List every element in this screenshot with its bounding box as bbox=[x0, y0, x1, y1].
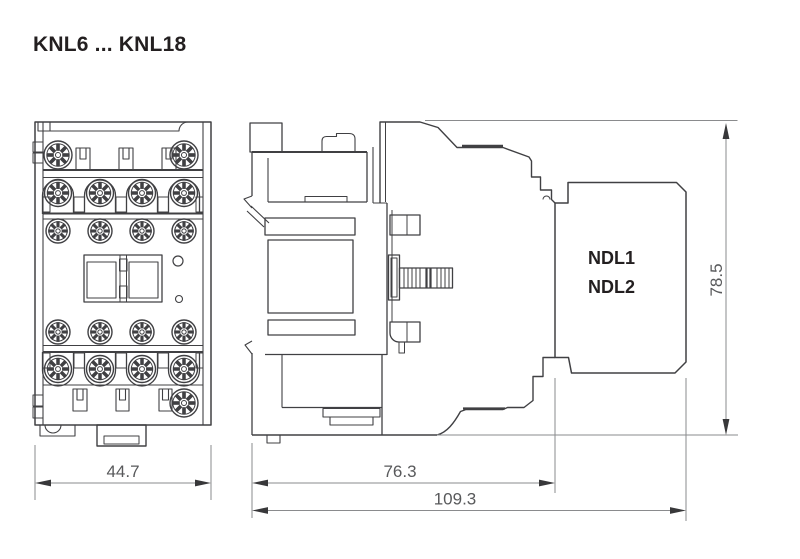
bottom-right-profile bbox=[437, 358, 555, 436]
dim-side-height: 78.5 bbox=[707, 263, 726, 296]
dimension-texts: 44.7 76.3 109.3 78.5 bbox=[106, 263, 726, 508]
screw-head bbox=[87, 356, 114, 383]
screw-head bbox=[45, 180, 72, 207]
top-separator-tabs bbox=[76, 148, 176, 170]
screw-head bbox=[44, 141, 72, 169]
screw-head bbox=[170, 389, 198, 417]
screw-terminals bbox=[44, 141, 198, 417]
screw-head bbox=[170, 141, 198, 169]
accessory-labels: NDL1 NDL2 bbox=[588, 248, 635, 297]
screw-head bbox=[45, 356, 72, 383]
dimension-arrows bbox=[35, 123, 729, 514]
label-ndl1: NDL1 bbox=[588, 248, 635, 268]
coil-terminal-lower bbox=[390, 322, 420, 353]
label-ndl2: NDL2 bbox=[588, 277, 635, 297]
din-rail-clip bbox=[40, 425, 146, 446]
dim-side-depth: 76.3 bbox=[383, 462, 416, 481]
front-view bbox=[33, 122, 211, 446]
coil-stack bbox=[265, 218, 355, 335]
screw-head bbox=[130, 219, 154, 243]
screw-head bbox=[87, 180, 114, 207]
upper-chamber bbox=[268, 134, 387, 204]
screw-head bbox=[88, 219, 112, 243]
screw-head bbox=[172, 320, 196, 344]
mounting-plate bbox=[244, 123, 367, 443]
indicator-hole-small bbox=[176, 296, 183, 303]
technical-drawing-page: KNL6 ... KNL18 bbox=[0, 0, 800, 559]
screw-head bbox=[171, 356, 198, 383]
screw-head bbox=[88, 320, 112, 344]
screw-head bbox=[129, 356, 156, 383]
coil-terminal-upper bbox=[390, 215, 420, 235]
bottom-separator-tabs bbox=[73, 389, 172, 411]
indicator-hole-large bbox=[173, 256, 183, 266]
terminal-screw bbox=[389, 255, 453, 300]
upper-body-block bbox=[380, 122, 555, 203]
screw-head bbox=[46, 320, 70, 344]
coil-window bbox=[84, 255, 162, 302]
drawing-canvas: NDL1 NDL2 bbox=[0, 0, 800, 559]
screw-head bbox=[130, 320, 154, 344]
dim-side-total-depth: 109.3 bbox=[434, 490, 477, 509]
screw-head bbox=[129, 180, 156, 207]
dim-front-width: 44.7 bbox=[106, 462, 139, 481]
screw-head bbox=[171, 180, 198, 207]
screw-head bbox=[172, 219, 196, 243]
screw-head bbox=[46, 219, 70, 243]
base-section bbox=[252, 355, 437, 436]
